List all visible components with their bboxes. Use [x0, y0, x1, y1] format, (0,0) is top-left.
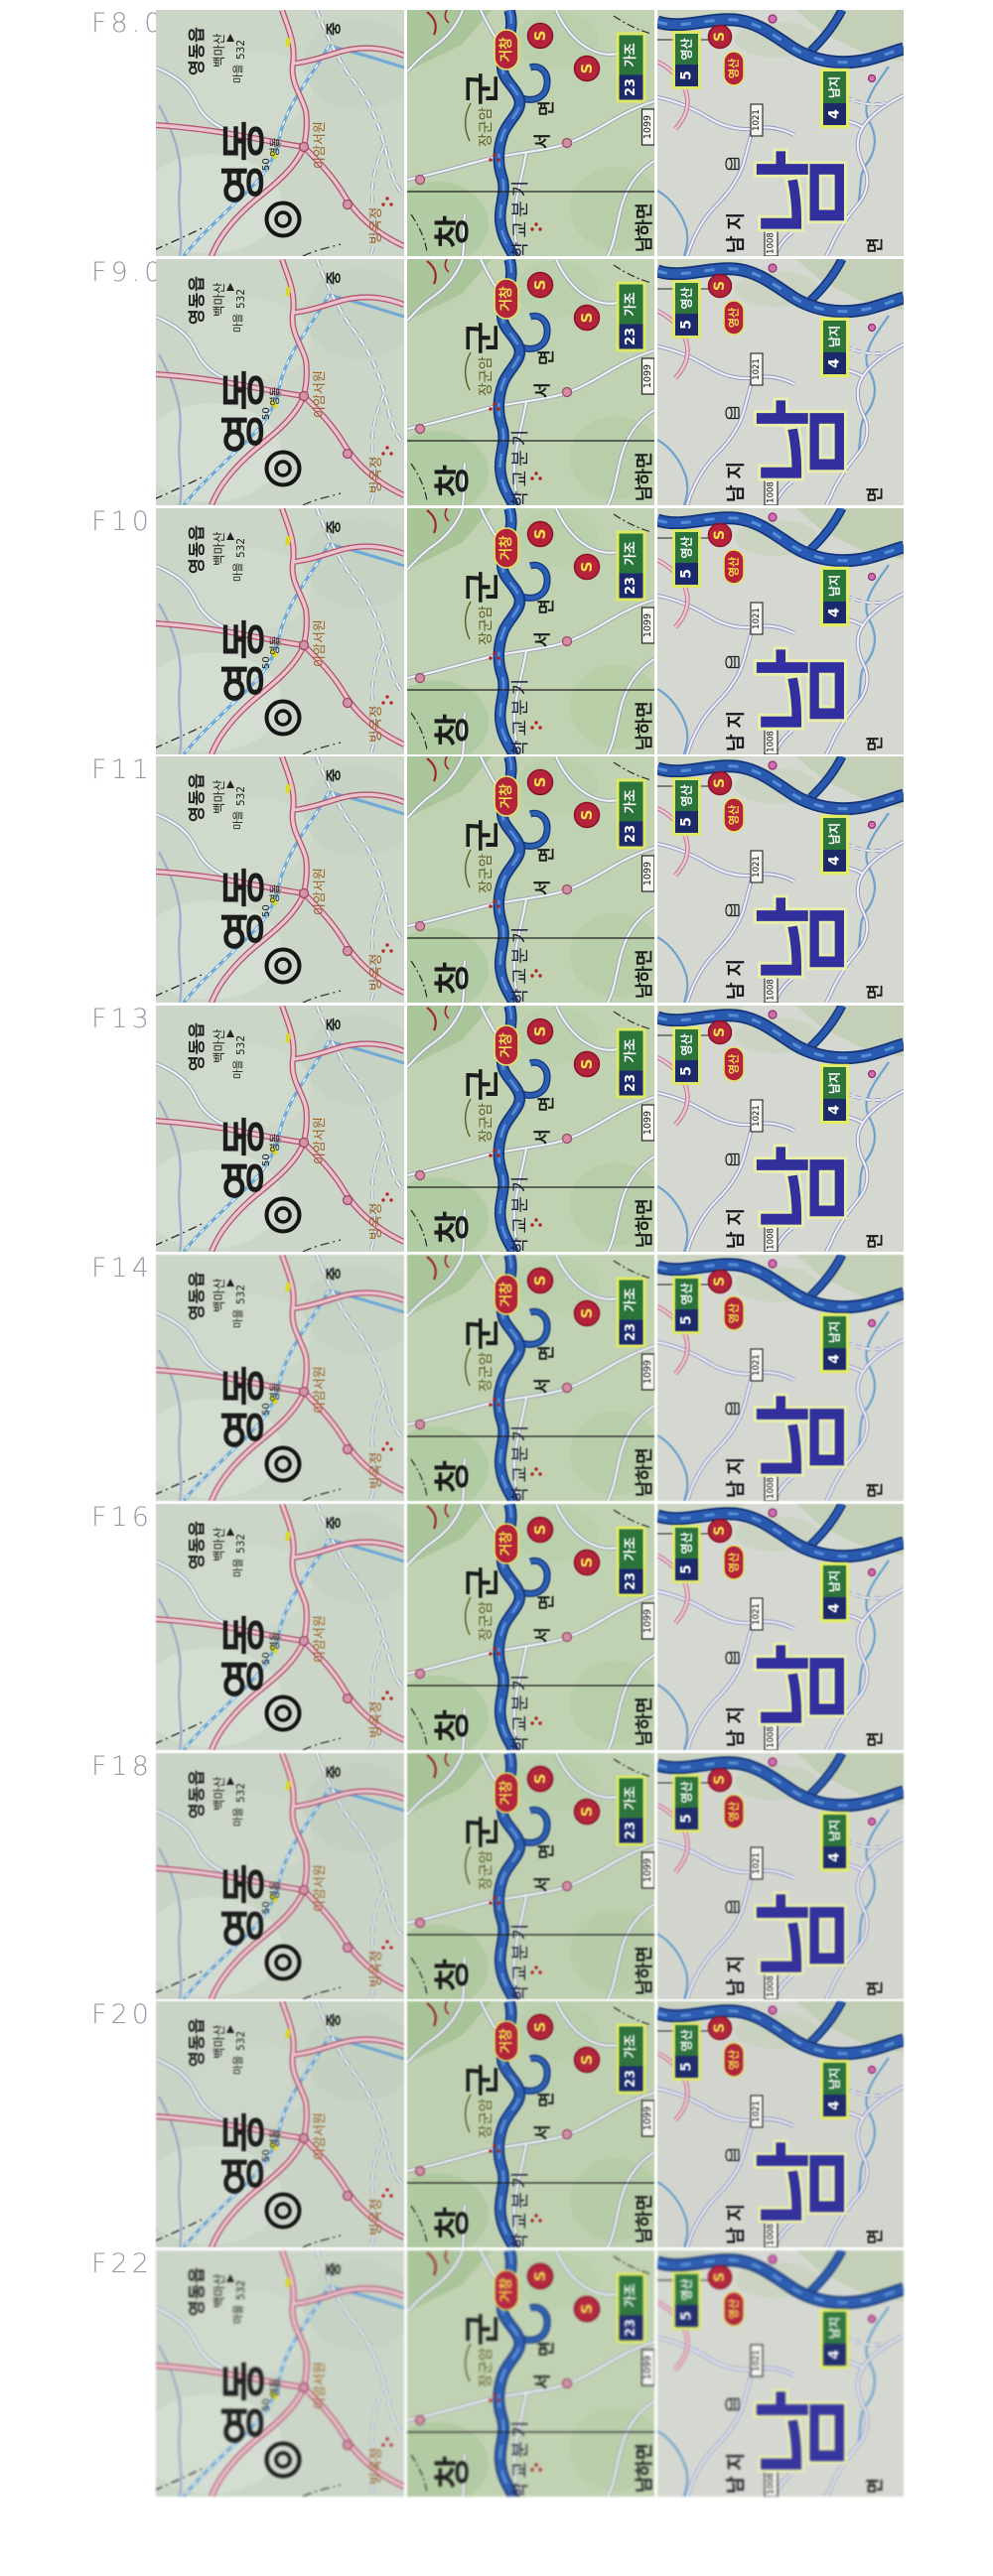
- map-crop-namji: [657, 756, 904, 1003]
- map-crop-yeongdong: [156, 1255, 404, 1501]
- map-crop-namji: [657, 1504, 904, 1750]
- map-crop-namji: [657, 1255, 904, 1501]
- map-crop-namji: [657, 2250, 904, 2497]
- comparison-row: F8.0: [0, 10, 993, 256]
- comparison-row: F14: [0, 1255, 993, 1501]
- map-crop-geochang: [407, 2001, 654, 2247]
- map-crop-geochang: [407, 1006, 654, 1252]
- comparison-row: F22: [0, 2250, 993, 2497]
- comparison-row: F18: [0, 1753, 993, 1999]
- map-crop-yeongdong: [156, 2250, 404, 2497]
- map-crop-yeongdong: [156, 508, 404, 754]
- aperture-label: F13: [91, 1006, 153, 1033]
- comparison-row: F9.0: [0, 259, 993, 505]
- aperture-label: F22: [91, 2250, 153, 2278]
- aperture-comparison-sheet: F8.0 F9.0 F10 F11 F13: [0, 0, 993, 2576]
- map-crop-geochang: [407, 1504, 654, 1750]
- aperture-label: F9.0: [91, 259, 165, 287]
- map-crop-yeongdong: [156, 1006, 404, 1252]
- aperture-label: F10: [91, 508, 153, 536]
- map-crop-namji: [657, 1753, 904, 1999]
- aperture-label: F20: [91, 2001, 153, 2029]
- map-crop-geochang: [407, 2250, 654, 2497]
- comparison-row: F20: [0, 2001, 993, 2247]
- map-crop-geochang: [407, 1753, 654, 1999]
- aperture-label: F11: [91, 756, 153, 784]
- map-crop-namji: [657, 259, 904, 505]
- aperture-label: F16: [91, 1504, 153, 1532]
- comparison-row: F16: [0, 1504, 993, 1750]
- map-crop-yeongdong: [156, 10, 404, 256]
- map-crop-namji: [657, 2001, 904, 2247]
- map-crop-geochang: [407, 259, 654, 505]
- map-crop-geochang: [407, 508, 654, 754]
- map-crop-geochang: [407, 756, 654, 1003]
- comparison-row: F13: [0, 1006, 993, 1252]
- map-crop-yeongdong: [156, 2001, 404, 2247]
- map-crop-namji: [657, 1006, 904, 1252]
- map-crop-yeongdong: [156, 1753, 404, 1999]
- map-crop-namji: [657, 10, 904, 256]
- map-crop-geochang: [407, 1255, 654, 1501]
- map-crop-yeongdong: [156, 259, 404, 505]
- map-crop-yeongdong: [156, 756, 404, 1003]
- map-crop-yeongdong: [156, 1504, 404, 1750]
- map-crop-geochang: [407, 10, 654, 256]
- comparison-row: F11: [0, 756, 993, 1003]
- aperture-label: F14: [91, 1255, 153, 1283]
- comparison-row: F10: [0, 508, 993, 754]
- aperture-label: F18: [91, 1753, 153, 1781]
- map-crop-namji: [657, 508, 904, 754]
- aperture-label: F8.0: [91, 10, 165, 38]
